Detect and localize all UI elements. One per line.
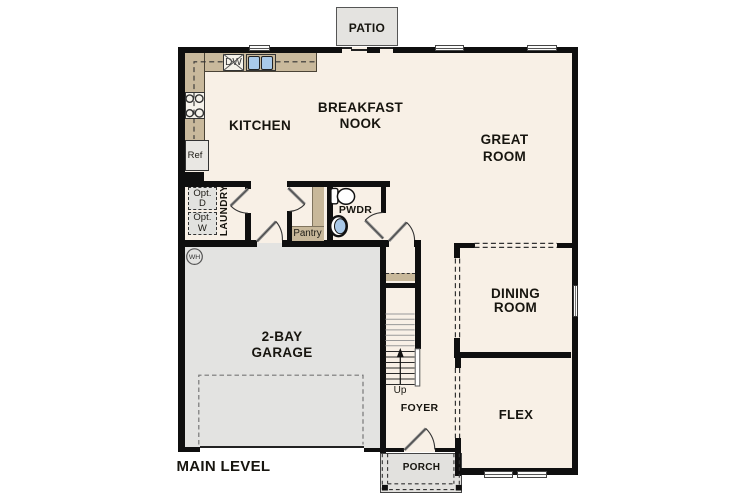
svg-text:WH: WH [189,254,200,261]
